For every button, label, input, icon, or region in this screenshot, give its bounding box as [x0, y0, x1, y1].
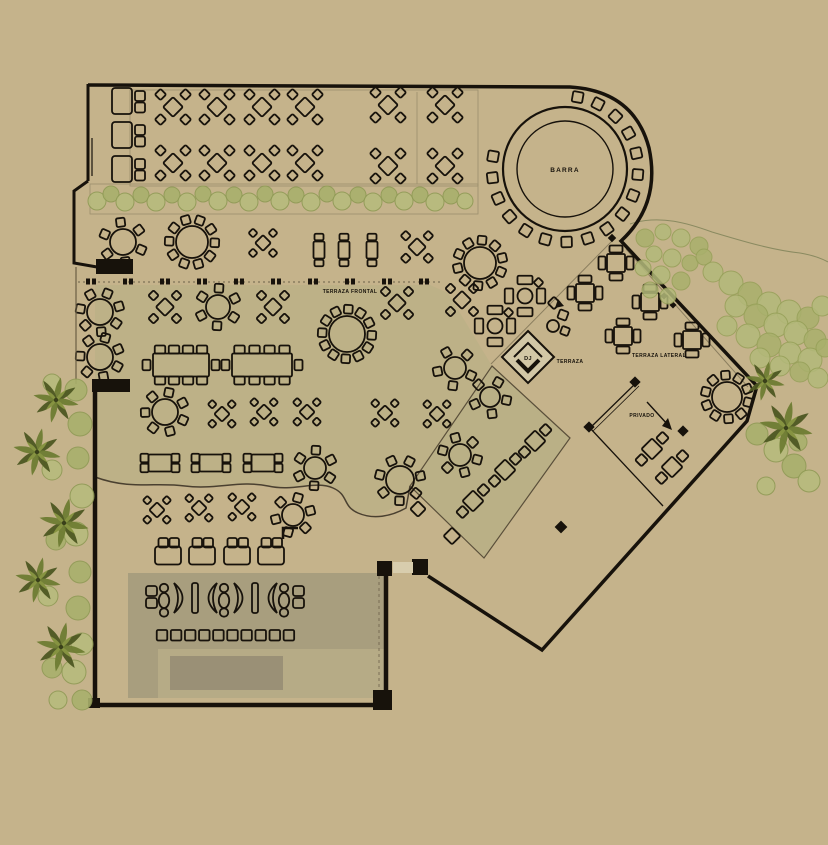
lounge-sofa: [112, 156, 145, 182]
tree-icon: [812, 296, 828, 316]
wall-pillar: [96, 259, 133, 274]
table-square-4-seats: [199, 89, 235, 125]
bush-icon: [240, 193, 258, 211]
column-marker: [555, 521, 568, 534]
table-2-seats: [314, 234, 325, 267]
column-marker: [608, 234, 616, 242]
bush-icon: [271, 192, 289, 210]
wall-pillar: [92, 379, 130, 392]
tree-icon: [660, 288, 676, 304]
bush-icon: [757, 477, 775, 495]
bush-icon: [72, 690, 92, 710]
table-square-4-seats: [199, 145, 235, 181]
areas: [90, 90, 828, 698]
lounge-arm: [128, 648, 158, 698]
tree-icon: [642, 282, 658, 298]
table-round: [453, 236, 508, 291]
lounge-sofa: [155, 538, 181, 565]
bush-icon: [68, 412, 92, 436]
bush-icon: [350, 187, 366, 203]
tree-icon: [655, 224, 671, 240]
table-2-seats: [339, 234, 350, 267]
tree-icon: [652, 266, 670, 284]
sofa-table-diagonal: [655, 450, 689, 485]
lounge-sofa: [189, 538, 215, 565]
table-square-4-seats: [185, 494, 213, 522]
tree-icon: [663, 249, 681, 267]
lounge-game-table: [475, 306, 516, 347]
table-square-4-seats: [370, 148, 406, 184]
table-square-4-seats: [244, 89, 280, 125]
tree-icon: [672, 229, 690, 247]
table-square-4-seats: [401, 231, 434, 264]
label-barra: BARRA: [550, 167, 579, 174]
sofa-table-diagonal: [635, 432, 669, 467]
stage: [170, 656, 283, 690]
label-dj: DJ: [524, 356, 532, 362]
table-square-4-seats: [427, 148, 463, 184]
privado-fence: [593, 386, 639, 431]
bush-icon: [67, 447, 89, 469]
tree-icon: [808, 368, 828, 388]
entrance-door: [393, 562, 413, 573]
bush-icon: [226, 187, 242, 203]
column-marker: [677, 425, 688, 436]
bush-icon: [302, 193, 320, 211]
small-lounge-set: [547, 309, 570, 336]
bush-icon: [164, 187, 180, 203]
table-square-4-seats: [287, 89, 323, 125]
bush-icon: [133, 187, 149, 203]
tree-icon: [725, 295, 747, 317]
table-square-4-seats: [228, 493, 256, 521]
bush-icon: [178, 193, 196, 211]
table-round: [701, 371, 754, 424]
label-privado: PRIVADO: [629, 413, 654, 419]
table-round: [165, 215, 219, 269]
label-terraza-frontal: TERRAZA FRONTAL: [323, 289, 378, 295]
bush-icon: [333, 192, 351, 210]
floor-plan-drawing: BARRATERRAZA FRONTALTERRAZATERRAZA LATER…: [0, 0, 828, 845]
bush-icon: [66, 596, 90, 620]
table-4-seats-cross: [606, 319, 641, 354]
bush-icon: [412, 187, 428, 203]
tree-icon: [636, 229, 654, 247]
tree-icon: [717, 316, 737, 336]
decor-plant: [548, 297, 564, 310]
planter-bushes: [88, 186, 473, 211]
label-terraza-lateral: TERRAZA LATERAL: [632, 353, 686, 359]
table-square-4-seats: [143, 496, 171, 524]
bush-icon: [147, 193, 165, 211]
table-round: [271, 493, 316, 538]
bush-icon: [426, 193, 444, 211]
wall-pillar: [412, 559, 428, 575]
bush-icon: [798, 470, 820, 492]
bush-icon: [257, 186, 273, 202]
tree-icon: [635, 260, 651, 276]
tree-icon: [646, 246, 662, 262]
bush-icon: [195, 186, 211, 202]
bush-icon: [288, 187, 304, 203]
table-square-4-seats: [248, 228, 277, 257]
bush-icon: [319, 186, 335, 202]
wall-pillar: [377, 561, 392, 576]
restaurant-floor-plan: BARRATERRAZA FRONTALTERRAZATERRAZA LATER…: [0, 0, 828, 845]
bush-icon: [62, 660, 86, 684]
bush-icon: [209, 192, 227, 210]
lounge-sofa: [224, 538, 250, 565]
lounge-sofa: [112, 88, 145, 114]
bush-icon: [70, 484, 94, 508]
table-square-4-seats: [155, 145, 191, 181]
tree-icon: [790, 362, 810, 382]
table-square-4-seats: [287, 145, 323, 181]
table-2-seats: [367, 234, 378, 267]
tree-icon: [736, 324, 760, 348]
privado-fence: [590, 383, 636, 428]
bush-icon: [69, 561, 91, 583]
label-terraza: TERRAZA: [557, 359, 584, 365]
bush-icon: [49, 691, 67, 709]
lounge-sofa: [258, 538, 284, 565]
wall-pillar: [373, 690, 392, 710]
bush-icon: [395, 192, 413, 210]
bush-icon: [457, 193, 473, 209]
lounge-sofa: [112, 122, 145, 148]
bush-icon: [364, 193, 382, 211]
table-square-4-seats: [155, 89, 191, 125]
table-square-4-seats: [244, 145, 280, 181]
table-square-4-seats: [370, 87, 406, 123]
table-square-4-seats: [427, 87, 463, 123]
bush-icon: [116, 193, 134, 211]
tree-icon: [672, 272, 690, 290]
